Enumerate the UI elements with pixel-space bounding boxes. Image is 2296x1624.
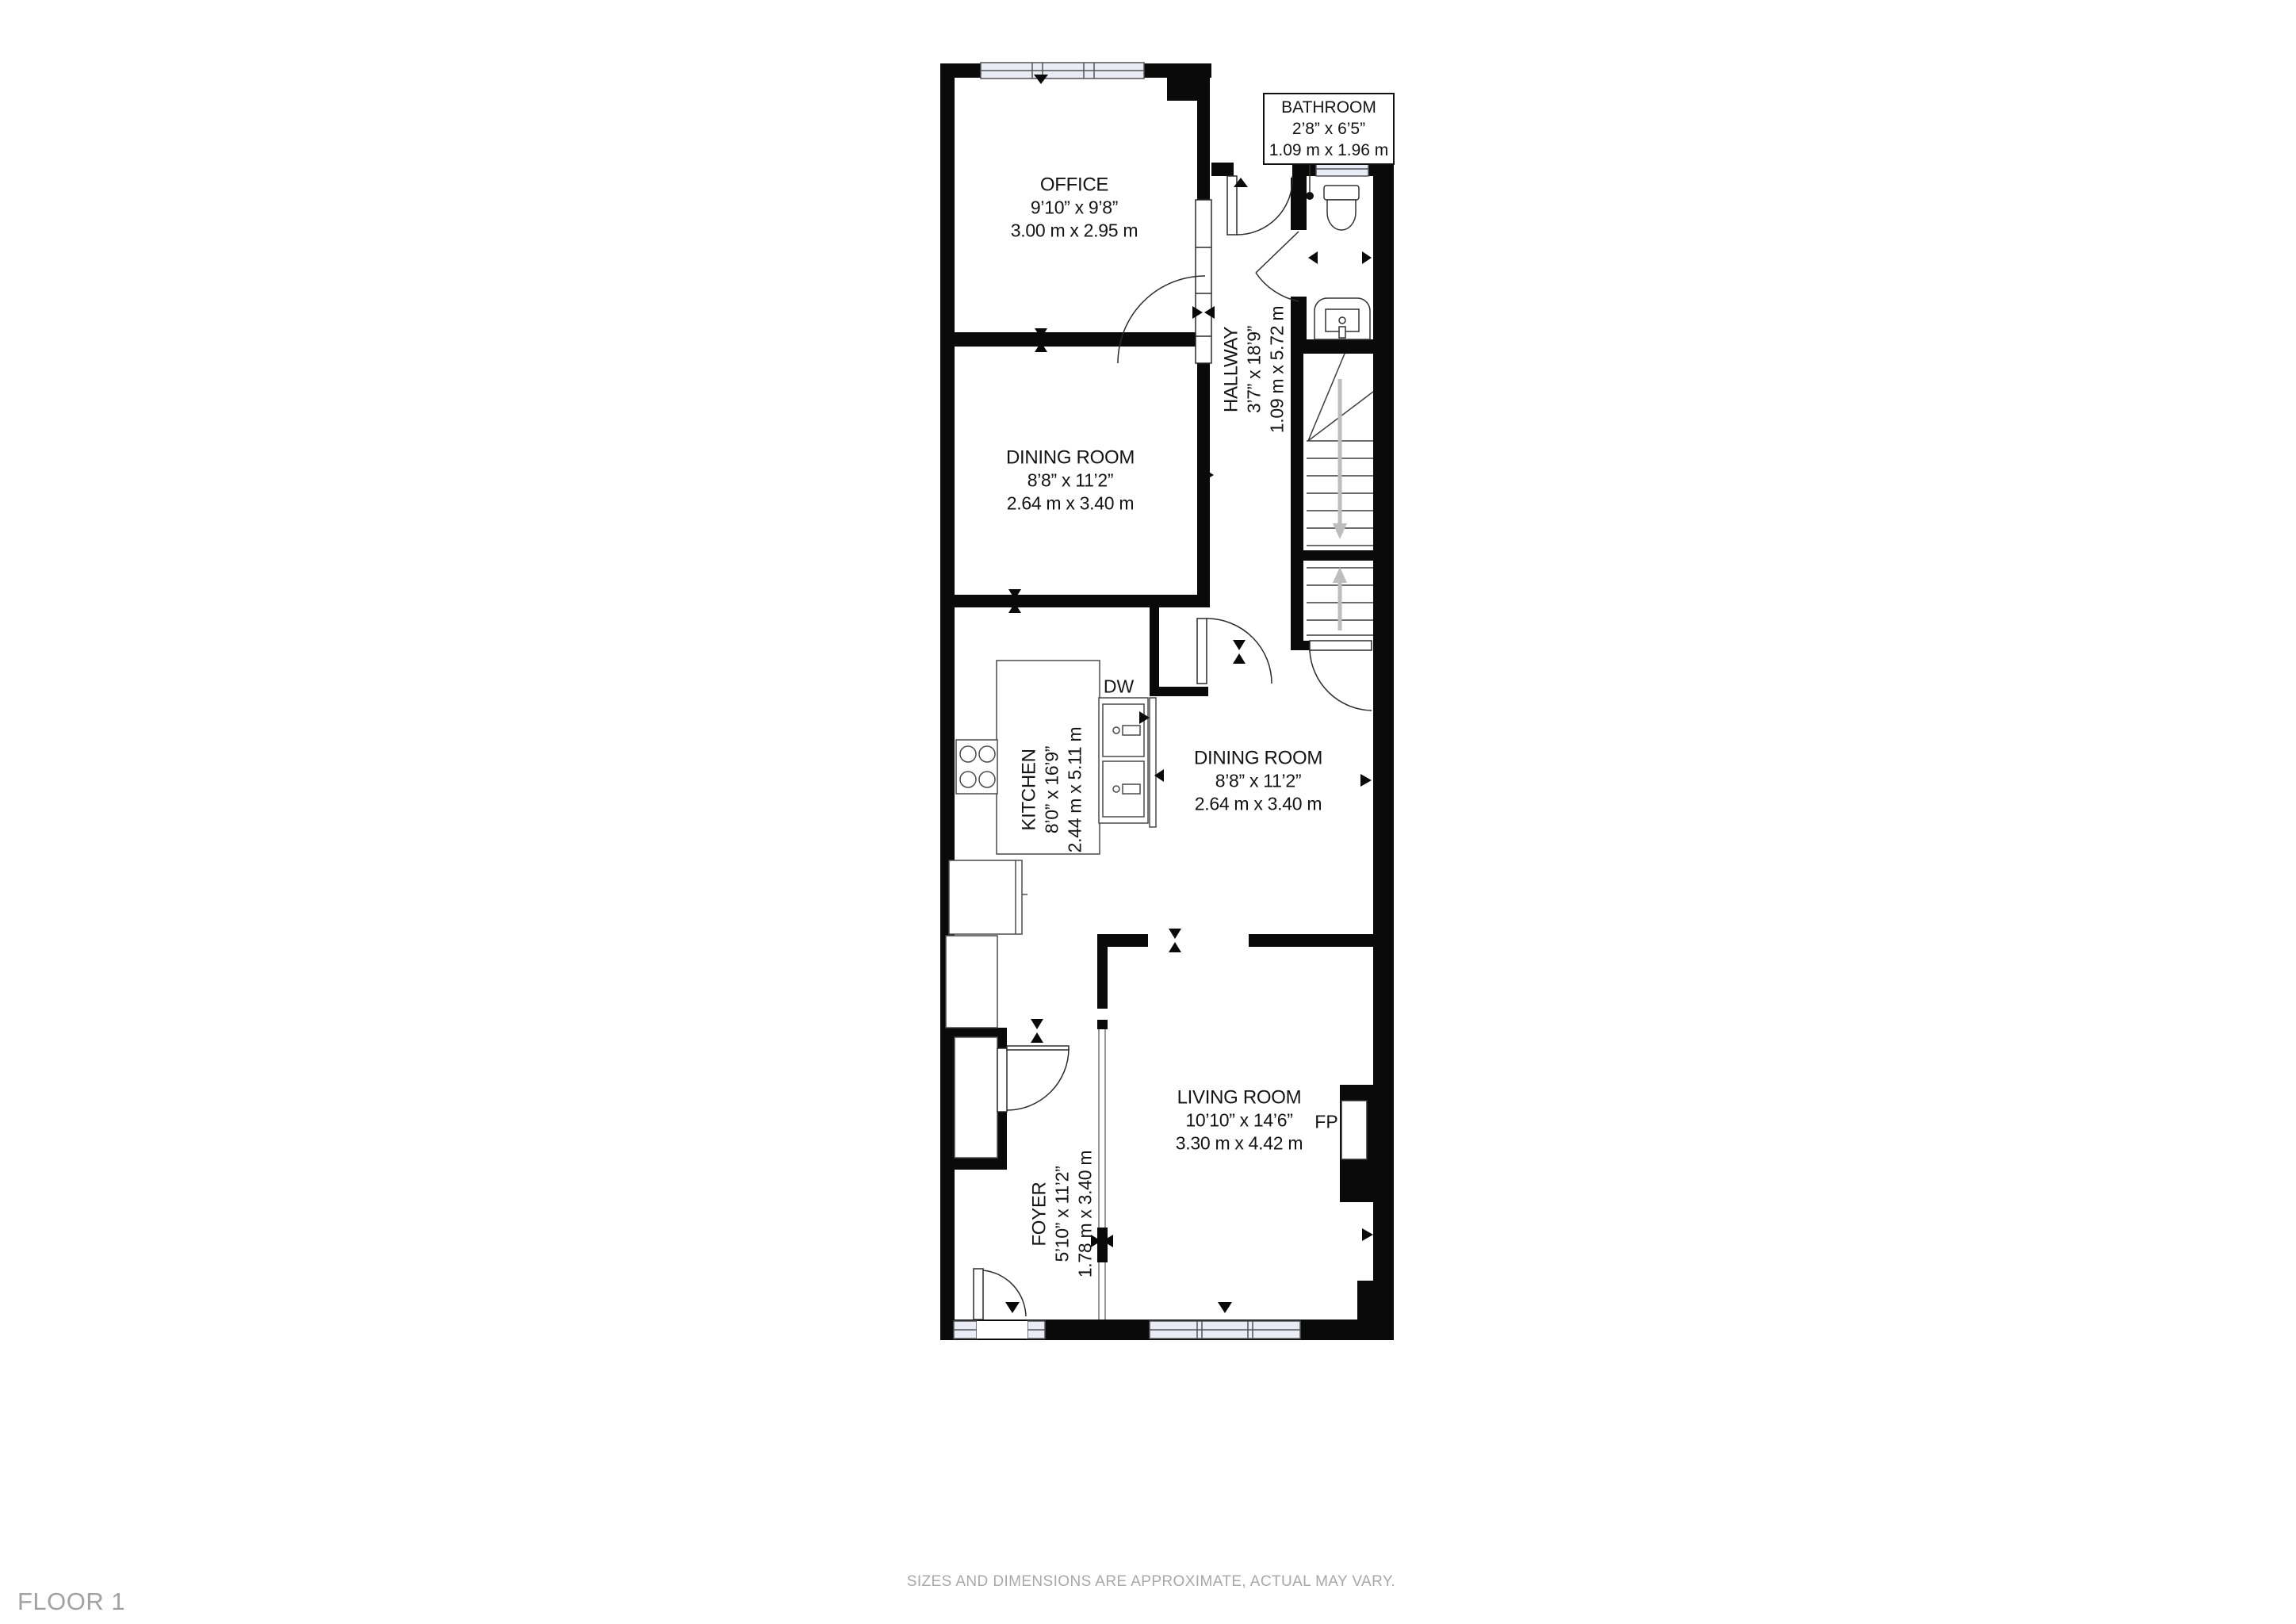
marker-living-opening-a: [1169, 929, 1181, 939]
room-imperial: 2’8” x 6’5”: [1292, 118, 1365, 140]
room-name: FOYER: [1028, 1182, 1051, 1246]
room-name: LIVING ROOM: [1177, 1086, 1302, 1109]
glass-partition: [1099, 1029, 1105, 1319]
entry-door-arc: [983, 1270, 1026, 1316]
office-door-frame: [1196, 200, 1211, 363]
wall-office-bottom: [940, 332, 1210, 347]
wall-divider-break: [1097, 1020, 1108, 1029]
stove-burner: [960, 772, 976, 787]
entry-door-opening: [977, 1321, 1027, 1339]
wall-stair-bottom-stub: [1291, 641, 1310, 650]
pantry-cabinet: [946, 936, 997, 1028]
hallway-label: HALLWAY 3’7” x 18’9” 1.09 m x 5.72 m: [1220, 306, 1289, 433]
wall-closet-bottom: [1150, 687, 1208, 696]
marker-top-window: [1034, 75, 1048, 84]
room-name: DINING ROOM: [1194, 747, 1322, 770]
room-metric: 1.09 m x 1.96 m: [1269, 140, 1389, 161]
marker-living-right: [1362, 1228, 1373, 1241]
foyer-closet-door-arc: [1007, 1048, 1069, 1110]
marker-dining2-right: [1360, 774, 1372, 787]
living-room-label: LIVING ROOM 10’10” x 14’6” 3.30 m x 4.42…: [1176, 1086, 1303, 1155]
stove-burner: [979, 772, 995, 787]
toilet-tank: [1324, 186, 1359, 200]
wall-foyer-closet-right-a: [997, 1028, 1007, 1048]
sink-drain: [1339, 317, 1345, 324]
knob: [1113, 786, 1119, 792]
wall-corner-block: [1357, 1281, 1394, 1340]
marker-closet-door-b: [1233, 653, 1246, 664]
wall-office-right-lower: [1197, 363, 1210, 607]
disclaimer-text: SIZES AND DIMENSIONS ARE APPROXIMATE, AC…: [907, 1573, 1395, 1591]
marker-bathroom-right: [1362, 251, 1372, 264]
marker-bathroom-left: [1308, 251, 1318, 264]
marker-closet-door-a: [1233, 640, 1246, 650]
room-name: KITCHEN: [1018, 749, 1041, 830]
closet-door-leaf: [1197, 619, 1207, 684]
dining-room-1-label: DINING ROOM 8’8” x 11’2” 2.64 m x 3.40 m: [1006, 446, 1135, 515]
foyer-closet-door-opening: [997, 1048, 1007, 1112]
fireplace-label: FP: [1314, 1112, 1337, 1133]
wall-office-right-upper: [1197, 77, 1210, 204]
bathroom-door-opening: [1289, 230, 1308, 297]
entry-door-leaf: [974, 1269, 983, 1319]
wall-left: [940, 63, 955, 1340]
wall-divider-upper: [1097, 934, 1108, 1009]
wall-foyer-closet-top: [940, 1028, 1007, 1037]
room-imperial: 8’8” x 11’2”: [1027, 469, 1113, 492]
wall-foyer-closet-bottom: [940, 1158, 1007, 1170]
marker-passage-b: [1031, 1032, 1043, 1043]
stair-up-arrow: [1333, 567, 1347, 583]
room-imperial: 3’7” x 18’9”: [1243, 326, 1266, 413]
foyer-closet-door-leaf: [1007, 1046, 1069, 1050]
room-name: DINING ROOM: [1006, 446, 1135, 469]
stove-burner: [979, 746, 995, 762]
wall-stair-landing: [1291, 550, 1373, 561]
room-imperial: 9’10” x 9’8”: [1031, 197, 1118, 220]
sink-faucet: [1339, 327, 1345, 338]
floor-plan-drawing: [0, 0, 2296, 1624]
room-name: BATHROOM: [1281, 97, 1376, 118]
wall-dining1-bottom: [940, 595, 1208, 607]
wall-divider-mid: [1097, 1228, 1108, 1262]
room-metric: 2.64 m x 3.40 m: [1195, 793, 1322, 816]
room-imperial: 8’8” x 11’2”: [1215, 770, 1301, 793]
floor-title: FLOOR 1: [17, 1588, 125, 1616]
room-imperial: 10’10” x 14’6”: [1185, 1109, 1292, 1132]
closet-door-arc: [1207, 619, 1272, 684]
stair-down-arrow: [1333, 523, 1347, 539]
marker-passage-a: [1031, 1019, 1043, 1029]
bathroom-fixtures: [1314, 186, 1370, 339]
marker-living-window: [1218, 1302, 1232, 1313]
dining-room-2-label: DINING ROOM 8’8” x 11’2” 2.64 m x 3.40 m: [1194, 747, 1322, 816]
dishwasher-label: DW: [1104, 676, 1134, 698]
room-metric: 1.09 m x 5.72 m: [1266, 306, 1289, 433]
wall-bathroom-bottom: [1291, 339, 1373, 354]
room-name: HALLWAY: [1220, 327, 1243, 412]
bathroom-label-box: BATHROOM 2’8” x 6’5” 1.09 m x 1.96 m: [1263, 93, 1395, 165]
wall-living-top-right: [1249, 934, 1373, 947]
room-metric: 1.78 m x 3.40 m: [1074, 1151, 1097, 1277]
understairs-door-leaf: [1310, 641, 1372, 650]
marker-entry-door: [1005, 1302, 1020, 1313]
room-metric: 2.44 m x 5.11 m: [1064, 727, 1087, 853]
fridge: [949, 860, 1022, 934]
marker-living-opening-b: [1169, 942, 1181, 952]
room-imperial: 8’0” x 16’9”: [1041, 746, 1064, 833]
wall-stairwell-left: [1291, 354, 1303, 650]
room-metric: 2.64 m x 3.40 m: [1007, 492, 1134, 515]
stove-burner: [960, 746, 976, 762]
island-counter-edge: [1150, 698, 1156, 827]
fireplace-firebox: [1341, 1101, 1367, 1159]
foyer-closet-interior: [955, 1037, 997, 1158]
room-imperial: 5’10” x 11’2”: [1051, 1166, 1074, 1262]
room-metric: 3.30 m x 4.42 m: [1176, 1132, 1303, 1155]
toilet-bowl: [1327, 200, 1356, 230]
room-name: OFFICE: [1040, 174, 1108, 197]
wall-closet-left: [1150, 607, 1159, 696]
understairs-door-arc: [1310, 650, 1372, 710]
knob: [1113, 727, 1119, 733]
handle: [1123, 726, 1140, 735]
office-door-arc: [1118, 276, 1205, 363]
stair-direction-arrows: [1333, 379, 1347, 630]
handle: [1123, 784, 1140, 794]
kitchen-label: KITCHEN 8’0” x 16’9” 2.44 m x 5.11 m: [1018, 727, 1087, 853]
foyer-label: FOYER 5’10” x 11’2” 1.78 m x 3.40 m: [1028, 1151, 1097, 1277]
office-label: OFFICE 9’10” x 9’8” 3.00 m x 2.95 m: [1011, 174, 1138, 243]
room-metric: 3.00 m x 2.95 m: [1011, 220, 1138, 243]
